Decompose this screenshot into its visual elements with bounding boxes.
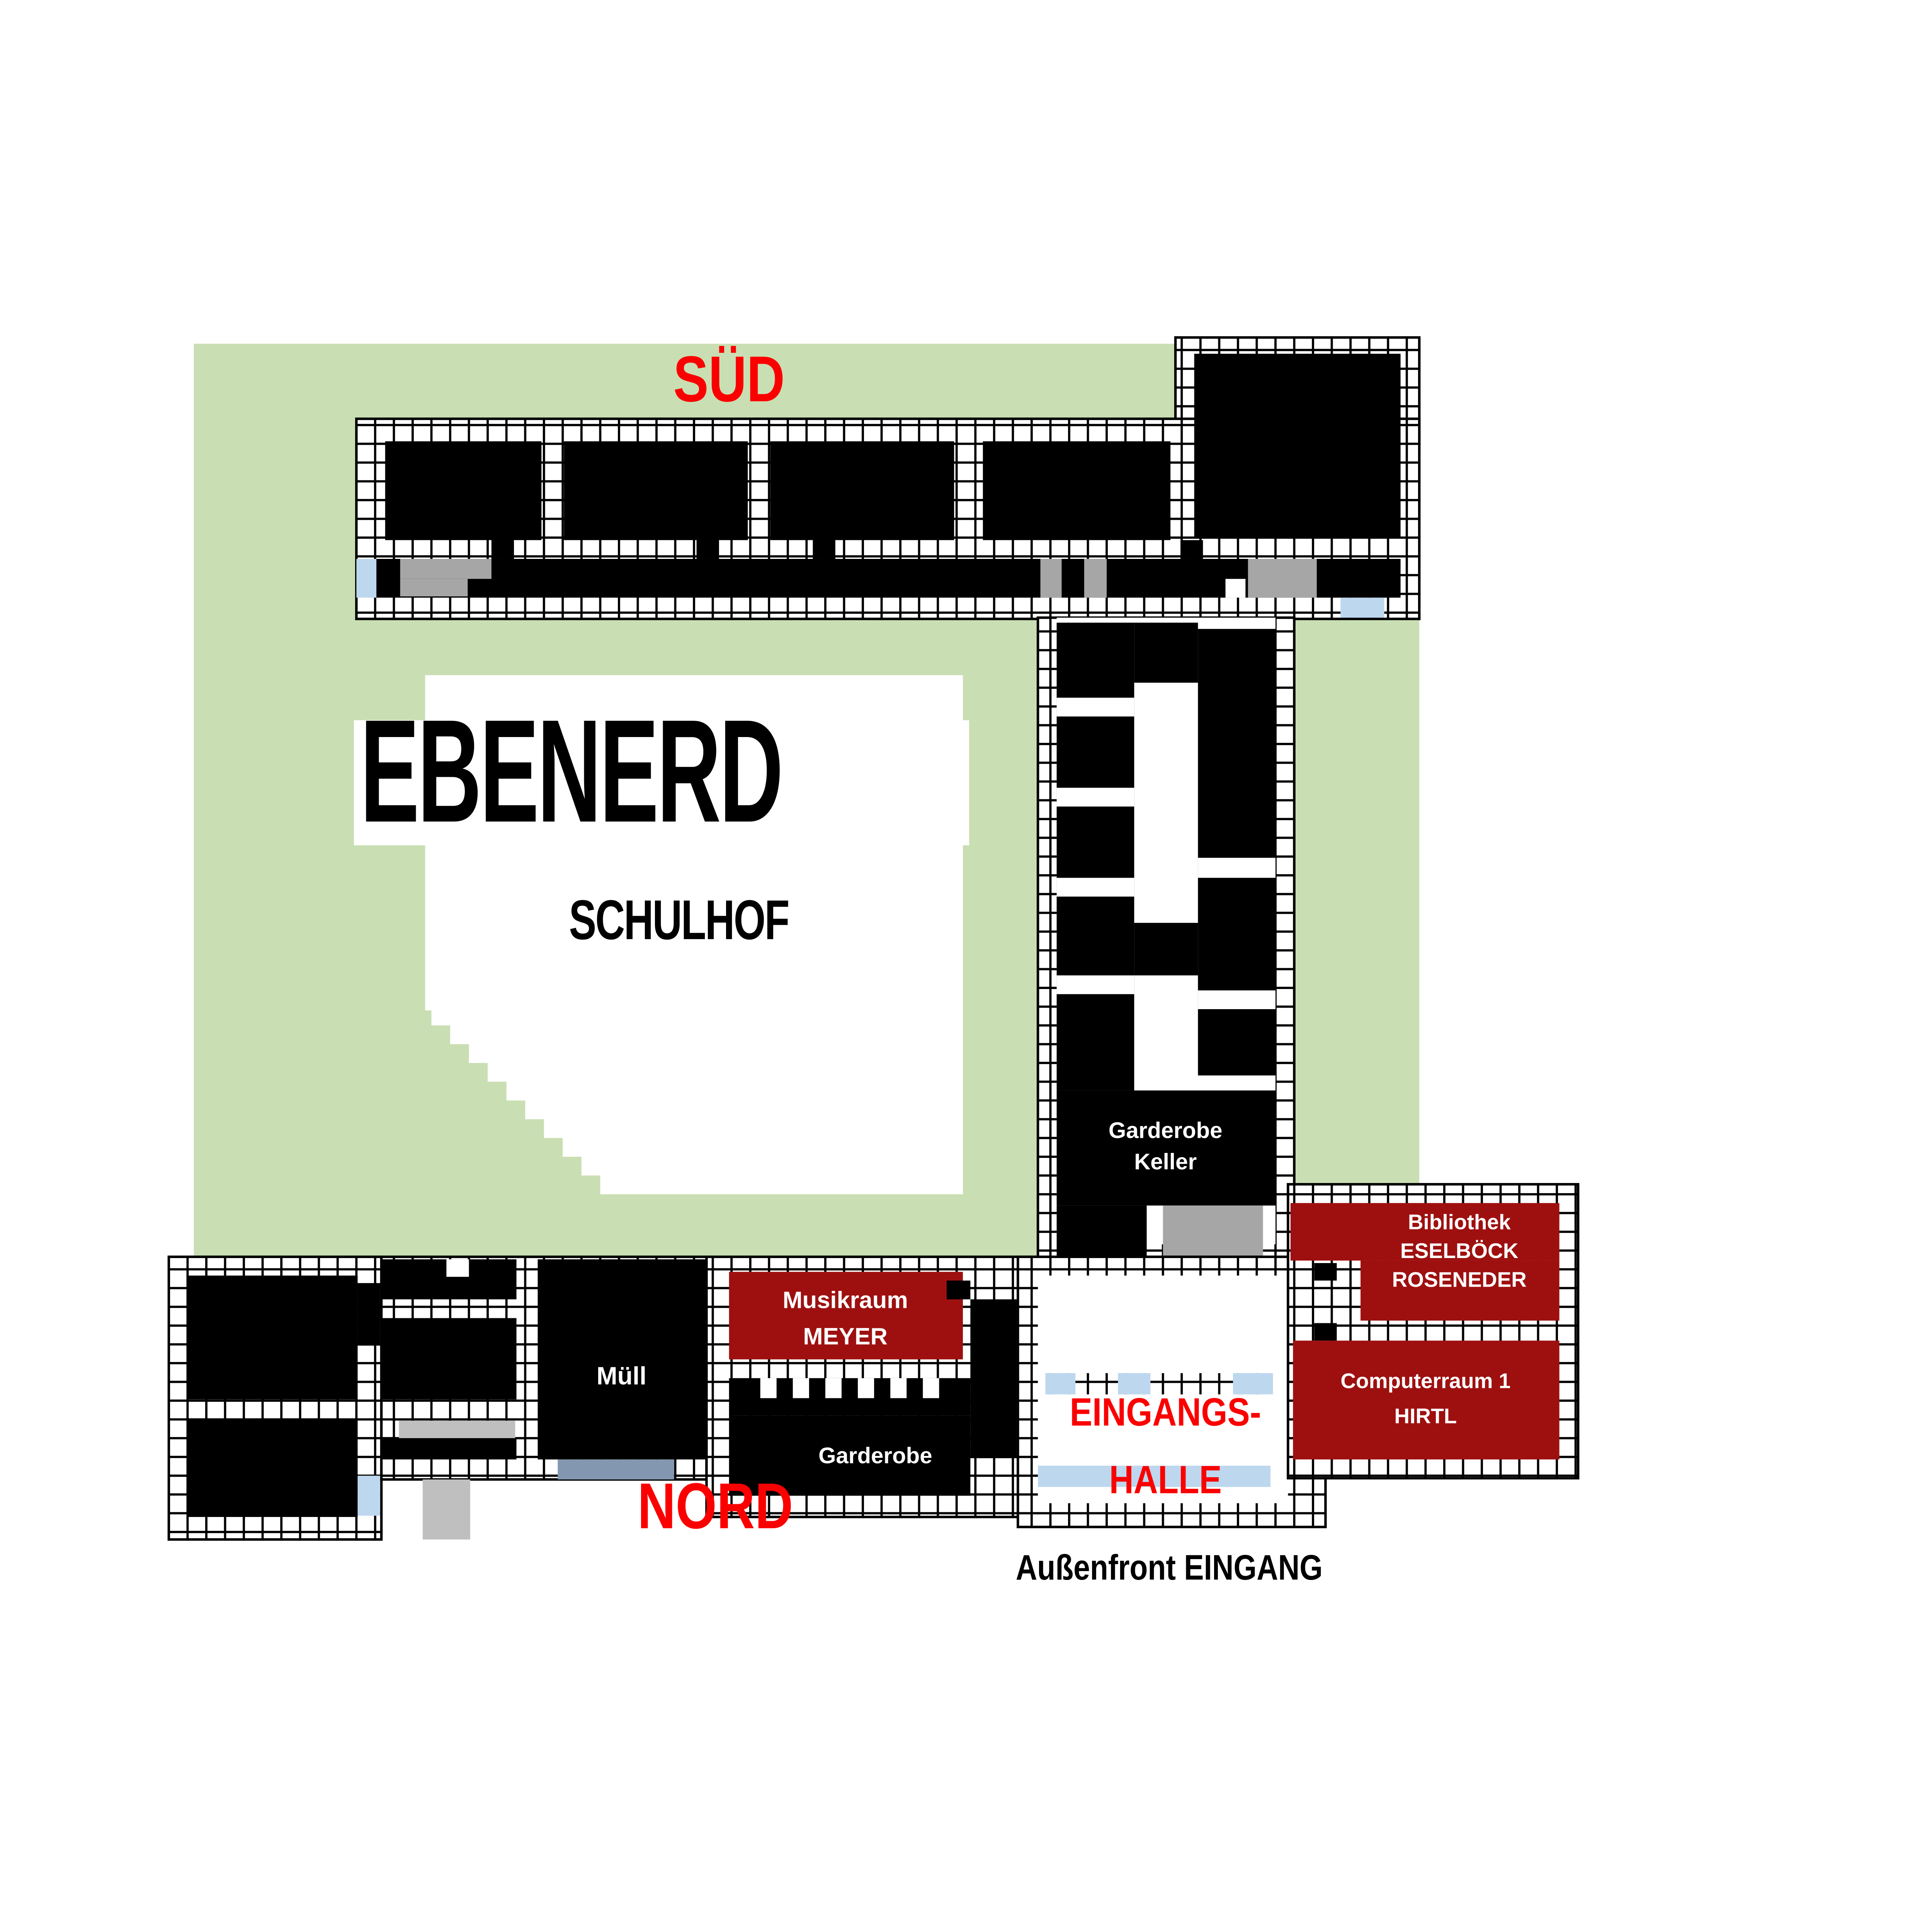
floor-plan: Garderobe Keller Müll Musikraum MEYER [0,0,1932,1917]
garderobe-nord-label: Garderobe [818,1443,932,1468]
south-corridor [375,559,1401,598]
halle-label: HALLE [1109,1458,1222,1502]
stairs-junction-2 [1084,559,1107,598]
classroom-sued-2 [564,441,748,540]
door-opening [446,1259,469,1277]
bibliothek-label-1: Bibliothek [1408,1210,1511,1234]
exit-tile-west [356,559,376,598]
classroom-sued-1 [385,441,542,540]
stairs-sued-right [1248,559,1317,598]
stall-gap [858,1378,874,1398]
wall-tile-block [1314,1323,1337,1340]
stall-gap [793,1378,809,1398]
halle-label-group: HALLE [1109,1458,1222,1502]
room-gap [1057,698,1134,717]
door-gap [813,540,835,559]
aussenfront-label-group: Außenfront EINGANG [1016,1547,1323,1587]
eingangs-label: EINGANGS- [1070,1390,1261,1434]
exit-tile-nord-west [358,1476,380,1516]
stall-gap [890,1378,906,1398]
room-gap [1198,991,1276,1010]
bibliothek-label-2: ESELBÖCK [1400,1239,1519,1263]
room-garderobe-keller [1057,1090,1276,1205]
entrance-hall: EINGANGS- HALLE [1018,1257,1325,1527]
wall-hall-west [970,1299,1017,1458]
room-nord-mid-2 [381,1318,517,1399]
classroom-sued-3 [770,441,954,540]
stall-gap [760,1378,777,1398]
muell-label: Müll [597,1362,646,1390]
room-below-keller [1057,1205,1147,1263]
room-gap [1057,788,1134,807]
wall-block [947,1280,970,1299]
door-gap [697,540,719,559]
room-computerraum [1293,1341,1559,1459]
nord-label-group: NORD [638,1470,793,1542]
annex: Bibliothek ESELBÖCK ROSENEDER Computerra… [1288,1184,1578,1478]
eingangs-label-group: EINGANGS- [1070,1390,1261,1434]
schulhof-label-group: SCHULHOF [569,889,788,951]
room-nord-west-2 [187,1420,357,1517]
classroom-sued-4 [983,441,1170,540]
stairs-nord-outside [423,1479,470,1539]
ebenerd-label: EBENERD [360,689,782,853]
room-gap [1198,858,1276,878]
classroom-sued-5 [1194,354,1401,538]
door-gap [492,540,514,559]
stall-gap [923,1378,939,1398]
stairs-nord-bar [399,1421,515,1438]
door-gap [1180,540,1203,559]
garderobe-keller-label-1: Garderobe [1109,1118,1223,1143]
sued-label: SÜD [673,343,785,415]
schulhof-label: SCHULHOF [569,889,788,951]
musikraum-label-2: MEYER [803,1323,888,1350]
garderobe-keller-label-2: Keller [1134,1149,1197,1174]
nord-label: NORD [638,1470,793,1542]
wall-connector [358,1283,380,1346]
ebenerd-label-group: EBENERD [360,689,782,853]
computerraum-label-2: HIRTL [1394,1404,1457,1428]
north-wing-west [169,1257,381,1539]
stairs-sued-left-lower [400,579,468,596]
musikraum-label-1: Musikraum [782,1287,908,1314]
stairs-sued-left [400,559,492,579]
room-muell [538,1259,707,1459]
connecting-wing: Garderobe Keller [1038,618,1294,1264]
corridor-crossing-mid [1134,923,1198,976]
room-nord-mid-3 [381,1438,517,1459]
corridor-opening [1226,579,1246,598]
aussenfront-label: Außenfront EINGANG [1016,1547,1323,1587]
sued-label-group: SÜD [673,343,785,415]
room-gap [1057,878,1134,897]
bibliothek-label-3: ROSENEDER [1392,1268,1526,1292]
exit-tile-east [1340,598,1384,618]
rooms-west-column [1057,623,1134,1090]
computerraum-label-1: Computerraum 1 [1340,1369,1510,1393]
wall-tile-block [1314,1263,1337,1280]
room-nord-west-1 [187,1275,357,1399]
stairs-junction-1 [1041,559,1062,598]
corridor-crossing-top [1134,623,1198,683]
room-gap [1057,976,1134,994]
stall-gap [825,1378,842,1398]
